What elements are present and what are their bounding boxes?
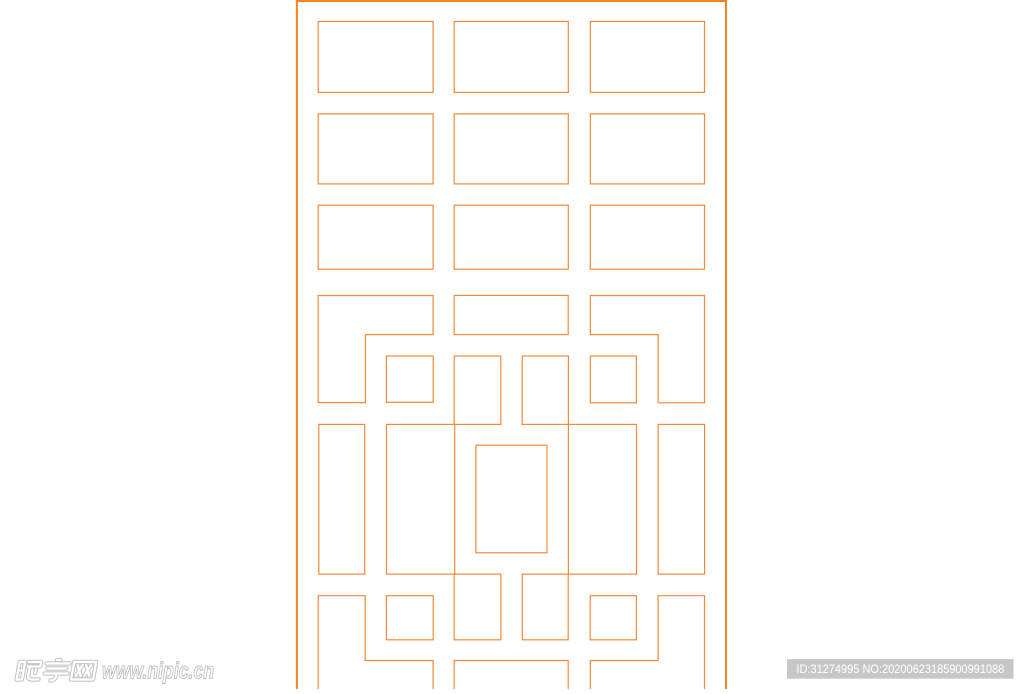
svg-text:ID:31274995 NO:202006231859009: ID:31274995 NO:20200623185900991088 — [796, 664, 1004, 676]
svg-text:www.nipic.cn: www.nipic.cn — [102, 658, 214, 684]
